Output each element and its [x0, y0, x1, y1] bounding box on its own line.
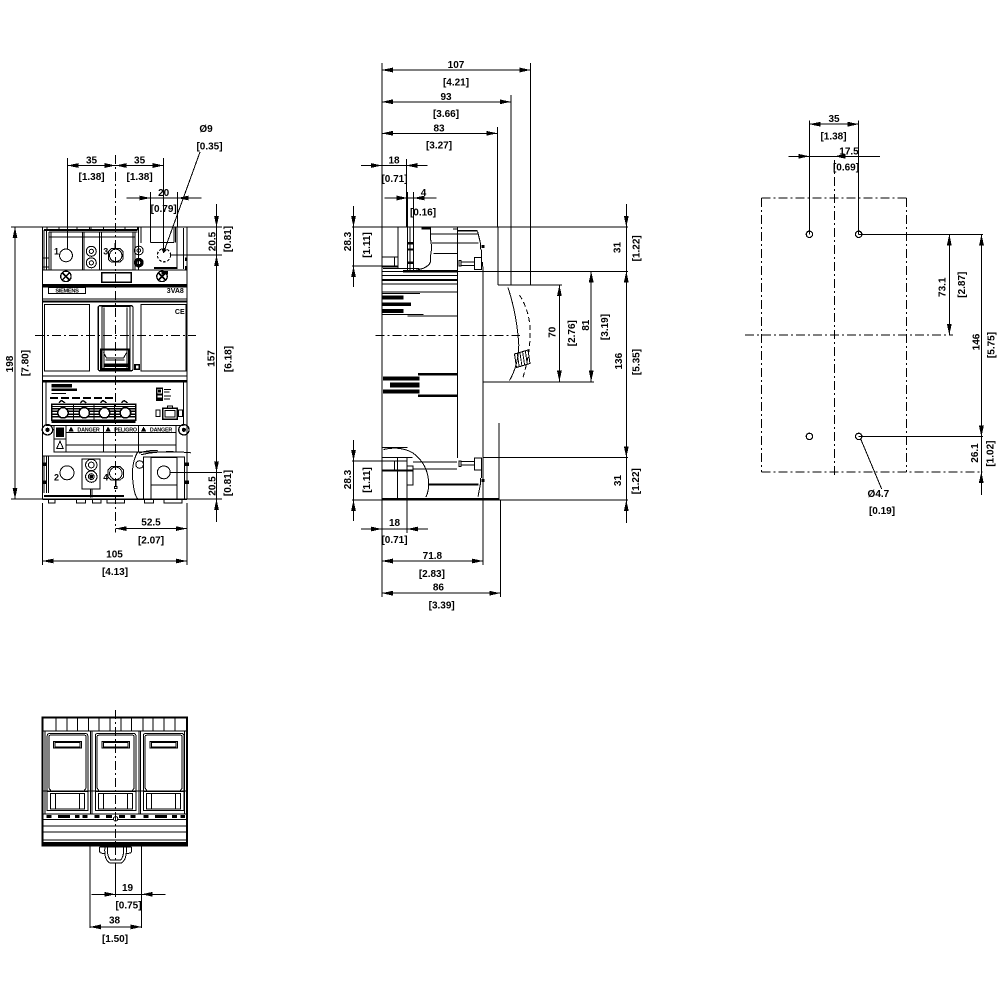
svg-text:[7.80]: [7.80]	[20, 350, 31, 376]
svg-text:[4.13]: [4.13]	[102, 567, 128, 578]
svg-text:[3.27]: [3.27]	[426, 141, 452, 152]
svg-text:70: 70	[548, 326, 559, 338]
svg-text:3: 3	[103, 247, 108, 257]
svg-text:86: 86	[433, 582, 445, 593]
svg-text:18: 18	[388, 156, 400, 167]
svg-text:Ø9: Ø9	[199, 124, 213, 135]
svg-text:[0.75]: [0.75]	[115, 901, 141, 912]
svg-text:[1.22]: [1.22]	[632, 235, 643, 261]
svg-text:35: 35	[86, 156, 98, 167]
svg-text:17.5: 17.5	[839, 147, 859, 158]
svg-text:[0.81]: [0.81]	[223, 470, 234, 496]
svg-text:81: 81	[581, 319, 592, 331]
svg-text:[2.87]: [2.87]	[957, 272, 968, 298]
svg-text:[0.71]: [0.71]	[381, 535, 407, 546]
svg-text:[3.19]: [3.19]	[600, 314, 611, 340]
svg-text:[0.35]: [0.35]	[196, 142, 222, 153]
svg-text:105: 105	[106, 550, 123, 561]
svg-text:[1.11]: [1.11]	[362, 232, 373, 258]
svg-text:[1.38]: [1.38]	[127, 172, 153, 183]
svg-text:31: 31	[613, 242, 624, 254]
svg-text:26.1: 26.1	[970, 443, 981, 463]
svg-text:4: 4	[103, 473, 108, 483]
svg-text:52.5: 52.5	[141, 518, 161, 529]
svg-text:[1.38]: [1.38]	[820, 132, 846, 143]
svg-text:107: 107	[448, 60, 465, 71]
svg-text:[5.35]: [5.35]	[632, 349, 643, 375]
svg-text:198: 198	[5, 355, 16, 372]
svg-text:157: 157	[207, 350, 218, 367]
svg-text:SIEMENS: SIEMENS	[55, 289, 79, 295]
svg-text:DANGER: DANGER	[77, 427, 99, 433]
svg-text:[3.66]: [3.66]	[433, 109, 459, 120]
svg-text:18: 18	[389, 518, 401, 529]
svg-text:[0.71]: [0.71]	[381, 174, 407, 185]
svg-text:[1.38]: [1.38]	[78, 172, 104, 183]
svg-text:DANGER: DANGER	[150, 427, 172, 433]
svg-text:1: 1	[54, 247, 59, 257]
svg-text:71.8: 71.8	[423, 551, 443, 562]
svg-text:PELIGRO: PELIGRO	[114, 427, 137, 433]
svg-text:[3.39]: [3.39]	[429, 601, 455, 612]
svg-text:136: 136	[614, 352, 625, 369]
svg-text:[1.22]: [1.22]	[631, 468, 642, 494]
svg-text:[6.18]: [6.18]	[224, 346, 235, 372]
svg-text:Ø4.7: Ø4.7	[868, 489, 890, 500]
svg-text:2: 2	[54, 473, 59, 483]
svg-text:35: 35	[134, 156, 146, 167]
svg-text:[5.75]: [5.75]	[987, 332, 998, 358]
svg-text:38: 38	[109, 916, 121, 927]
svg-text:[2.76]: [2.76]	[567, 320, 578, 346]
svg-text:73.1: 73.1	[937, 277, 948, 297]
svg-text:[4.21]: [4.21]	[443, 78, 469, 89]
svg-text:31: 31	[613, 475, 624, 487]
svg-text:[0.69]: [0.69]	[833, 163, 859, 174]
svg-text:20.5: 20.5	[208, 476, 219, 496]
svg-text:35: 35	[828, 114, 840, 125]
svg-text:[1.02]: [1.02]	[986, 441, 997, 467]
svg-text:83: 83	[433, 123, 445, 134]
svg-text:93: 93	[440, 92, 452, 103]
svg-text:[1.50]: [1.50]	[102, 934, 128, 945]
svg-text:20.5: 20.5	[208, 231, 219, 251]
svg-text:[0.79]: [0.79]	[151, 204, 177, 215]
svg-text:[0.19]: [0.19]	[869, 506, 895, 517]
svg-text:28.3: 28.3	[343, 469, 354, 489]
svg-text:28.3: 28.3	[343, 231, 354, 251]
svg-text:3VA8: 3VA8	[167, 288, 184, 295]
svg-text:[2.07]: [2.07]	[138, 536, 164, 547]
svg-text:[1.11]: [1.11]	[362, 467, 373, 493]
svg-text:20: 20	[158, 188, 170, 199]
svg-text:CE: CE	[175, 309, 185, 316]
svg-text:[2.83]: [2.83]	[419, 569, 445, 580]
svg-text:19: 19	[122, 883, 134, 894]
svg-text:4: 4	[421, 188, 427, 199]
svg-text:[0.81]: [0.81]	[223, 226, 234, 252]
svg-text:146: 146	[972, 333, 983, 350]
